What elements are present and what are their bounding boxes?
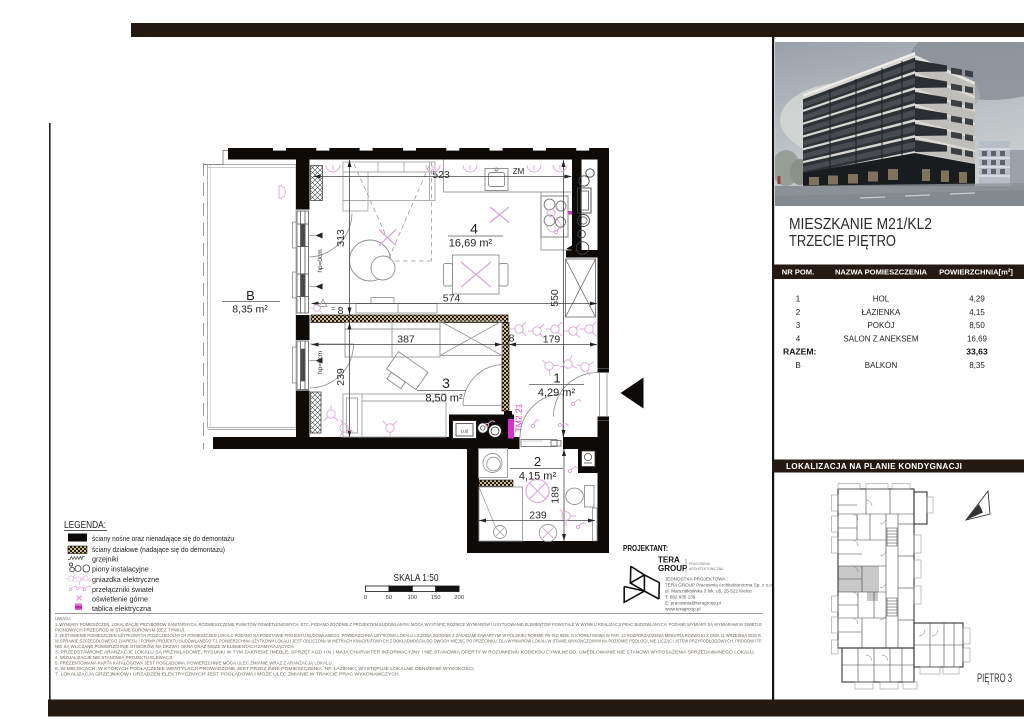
svg-text:HOL: HOL bbox=[873, 295, 890, 304]
svg-text:16,69: 16,69 bbox=[967, 335, 988, 344]
svg-text:GROUP: GROUP bbox=[658, 564, 688, 573]
svg-text:8: 8 bbox=[509, 333, 515, 345]
svg-text:TERA GROUP Pracownia Architekt: TERA GROUP Pracownia Architektoniczna Sp… bbox=[665, 583, 773, 588]
svg-text:przełączniki świateł: przełączniki świateł bbox=[92, 585, 154, 594]
svg-text:1: 1 bbox=[553, 371, 560, 386]
svg-text:hp=0cm: hp=0cm bbox=[317, 351, 324, 374]
svg-text:=: = bbox=[331, 304, 336, 313]
svg-text:ściany działowe (nadające się: ściany działowe (nadające się do demonta… bbox=[92, 545, 225, 554]
svg-text:100: 100 bbox=[407, 595, 417, 601]
svg-text:NAZWA POMIESZCZENIA: NAZWA POMIESZCZENIA bbox=[835, 268, 928, 277]
svg-text:B: B bbox=[795, 361, 800, 370]
svg-text:313: 313 bbox=[335, 229, 347, 247]
svg-text:8: 8 bbox=[338, 305, 344, 317]
svg-text:33,63: 33,63 bbox=[966, 347, 988, 357]
svg-text:523: 523 bbox=[432, 169, 450, 181]
svg-text:8,35: 8,35 bbox=[969, 361, 985, 370]
svg-text:2. ZESTAWIENIE POMIESZCZEŃ UŻY: 2. ZESTAWIENIE POMIESZCZEŃ UŻYTKOWYCH PO… bbox=[55, 633, 762, 638]
svg-text:4,15: 4,15 bbox=[969, 308, 985, 317]
svg-text:239: 239 bbox=[335, 368, 347, 386]
svg-text:PROJEKTANT:: PROJEKTANT: bbox=[623, 544, 668, 553]
svg-text:POWIERZCHNIA[m²]: POWIERZCHNIA[m²] bbox=[939, 268, 1013, 277]
svg-text:UWAGI:: UWAGI: bbox=[55, 616, 71, 621]
svg-text:2: 2 bbox=[796, 308, 801, 317]
svg-text:tablica elektryczna: tablica elektryczna bbox=[92, 604, 151, 613]
svg-text:NR POM.: NR POM. bbox=[782, 268, 815, 277]
svg-text:4,29: 4,29 bbox=[969, 295, 985, 304]
svg-text:TM2.21: TM2.21 bbox=[514, 403, 524, 432]
svg-text:189: 189 bbox=[550, 486, 562, 504]
svg-text:BALKON: BALKON bbox=[865, 361, 898, 370]
svg-text:3. PRZEDSTAWIONE ARANŻACJE LOK: 3. PRZEDSTAWIONE ARANŻACJE LOKALU SĄ PRZ… bbox=[55, 650, 755, 655]
svg-text:PIONOWYCH PRZEGRÓD W STANIE SU: PIONOWYCH PRZEGRÓD W STANIE SUROWYM (BEZ… bbox=[55, 628, 185, 633]
svg-text:C: C bbox=[592, 468, 597, 474]
svg-text:7. LOKALIZACJA GRZEJNIKÓW I UR: 7. LOKALIZACJA GRZEJNIKÓW I URZĄDZEŃ ELE… bbox=[55, 672, 400, 677]
svg-text:piony instalacyjne: piony instalacyjne bbox=[92, 565, 149, 574]
svg-text:0: 0 bbox=[364, 595, 367, 601]
svg-text:www.teragroup.pl: www.teragroup.pl bbox=[665, 607, 701, 612]
svg-text:50: 50 bbox=[386, 595, 392, 601]
svg-text:3: 3 bbox=[442, 375, 450, 391]
svg-text:PIĘTRO 3: PIĘTRO 3 bbox=[977, 673, 1012, 685]
svg-text:4: 4 bbox=[796, 335, 801, 344]
svg-text:179: 179 bbox=[543, 334, 561, 346]
svg-text:ul. Marszałkowska 3 lok. u5, 2: ul. Marszałkowska 3 lok. u5, 25-522 Kiel… bbox=[665, 589, 752, 594]
svg-text:1. WYMIARY POMIESZCZEŃ, LOKALI: 1. WYMIARY POMIESZCZEŃ, LOKALIZACJE PRZY… bbox=[55, 622, 762, 627]
svg-text:W SPRAWIE SZCZEGÓŁOWEGO ZAKRES: W SPRAWIE SZCZEGÓŁOWEGO ZAKRESU I FORMY … bbox=[55, 639, 762, 644]
svg-text:550: 550 bbox=[549, 289, 561, 307]
svg-text:MIESZKANIE M21/KL2: MIESZKANIE M21/KL2 bbox=[789, 216, 932, 233]
svg-text:T: 882 935 139: T: 882 935 139 bbox=[665, 595, 696, 600]
svg-text:16,69 m²: 16,69 m² bbox=[449, 238, 493, 250]
svg-text:grzejniki: grzejniki bbox=[92, 555, 119, 564]
svg-text:ŁAZIENKA: ŁAZIENKA bbox=[862, 308, 901, 317]
svg-text:ściany nośne oraz nienadające: ściany nośne oraz nienadające się do dem… bbox=[92, 534, 234, 543]
svg-text:8,35 m²: 8,35 m² bbox=[232, 304, 268, 316]
svg-text:LEGENDA:: LEGENDA: bbox=[64, 519, 106, 531]
svg-text:4. WIZUALIZACJE NIE STANOWIĄ P: 4. WIZUALIZACJE NIE STANOWIĄ PROJEKTU EL… bbox=[55, 655, 173, 660]
svg-text:3: 3 bbox=[796, 321, 801, 330]
svg-text:Lu2: Lu2 bbox=[461, 429, 469, 434]
svg-text:1: 1 bbox=[796, 295, 801, 304]
svg-text:2: 2 bbox=[534, 454, 541, 469]
svg-text:oświetlenie górne: oświetlenie górne bbox=[92, 595, 148, 604]
svg-text:B: B bbox=[246, 288, 255, 303]
svg-text:200: 200 bbox=[454, 595, 464, 601]
svg-text:4,15 m²: 4,15 m² bbox=[519, 471, 557, 483]
svg-text:gniazdka elektryczne: gniazdka elektryczne bbox=[92, 575, 159, 584]
svg-text:8,50 m²: 8,50 m² bbox=[425, 393, 463, 405]
svg-text:LOKALIZACJA NA PLANIE KONDYGNA: LOKALIZACJA NA PLANIE KONDYGNACJI bbox=[786, 462, 962, 471]
svg-text:574: 574 bbox=[443, 293, 461, 305]
svg-text:JEDNOSTKA PROJEKTOWA :: JEDNOSTKA PROJEKTOWA : bbox=[665, 577, 728, 582]
svg-text:4,29 m²: 4,29 m² bbox=[538, 387, 576, 399]
svg-text:TRZECIE PIĘTRO: TRZECIE PIĘTRO bbox=[789, 233, 896, 250]
svg-text:E: pracownia@teragroup.pl: E: pracownia@teragroup.pl bbox=[665, 601, 721, 606]
svg-text:POKÓJ: POKÓJ bbox=[867, 321, 894, 330]
svg-text:8,50: 8,50 bbox=[969, 321, 985, 330]
svg-text:387: 387 bbox=[397, 334, 415, 346]
svg-text:ARCHITEKTONICZNA: ARCHITEKTONICZNA bbox=[689, 567, 724, 571]
svg-text:6. W MIEJSCACH, W KTÓRYCH PODŁ: 6. W MIEJSCACH, W KTÓRYCH PODŁĄCZENIE WE… bbox=[55, 666, 475, 671]
svg-text:5. PREZENTOWANA KARTA KATALOGO: 5. PREZENTOWANA KARTA KATALOGOWA JEST PO… bbox=[55, 661, 333, 666]
svg-text:SKALA 1:50: SKALA 1:50 bbox=[394, 572, 439, 584]
svg-text:RAZEM:: RAZEM: bbox=[783, 347, 817, 357]
svg-text:SALON Z ANEKSEM: SALON Z ANEKSEM bbox=[843, 335, 918, 344]
svg-text:239: 239 bbox=[529, 510, 547, 522]
svg-text:ZM: ZM bbox=[513, 167, 525, 176]
svg-text:NIE SĄ WLICZANE POWIERZCHNIE O: NIE SĄ WLICZANE POWIERZCHNIE OTWORÓW NA … bbox=[55, 644, 295, 649]
svg-text:4: 4 bbox=[470, 221, 478, 237]
svg-text:hp=0cm: hp=0cm bbox=[317, 249, 324, 272]
svg-text:PRACOWNIA: PRACOWNIA bbox=[689, 562, 711, 566]
svg-text:150: 150 bbox=[431, 595, 441, 601]
